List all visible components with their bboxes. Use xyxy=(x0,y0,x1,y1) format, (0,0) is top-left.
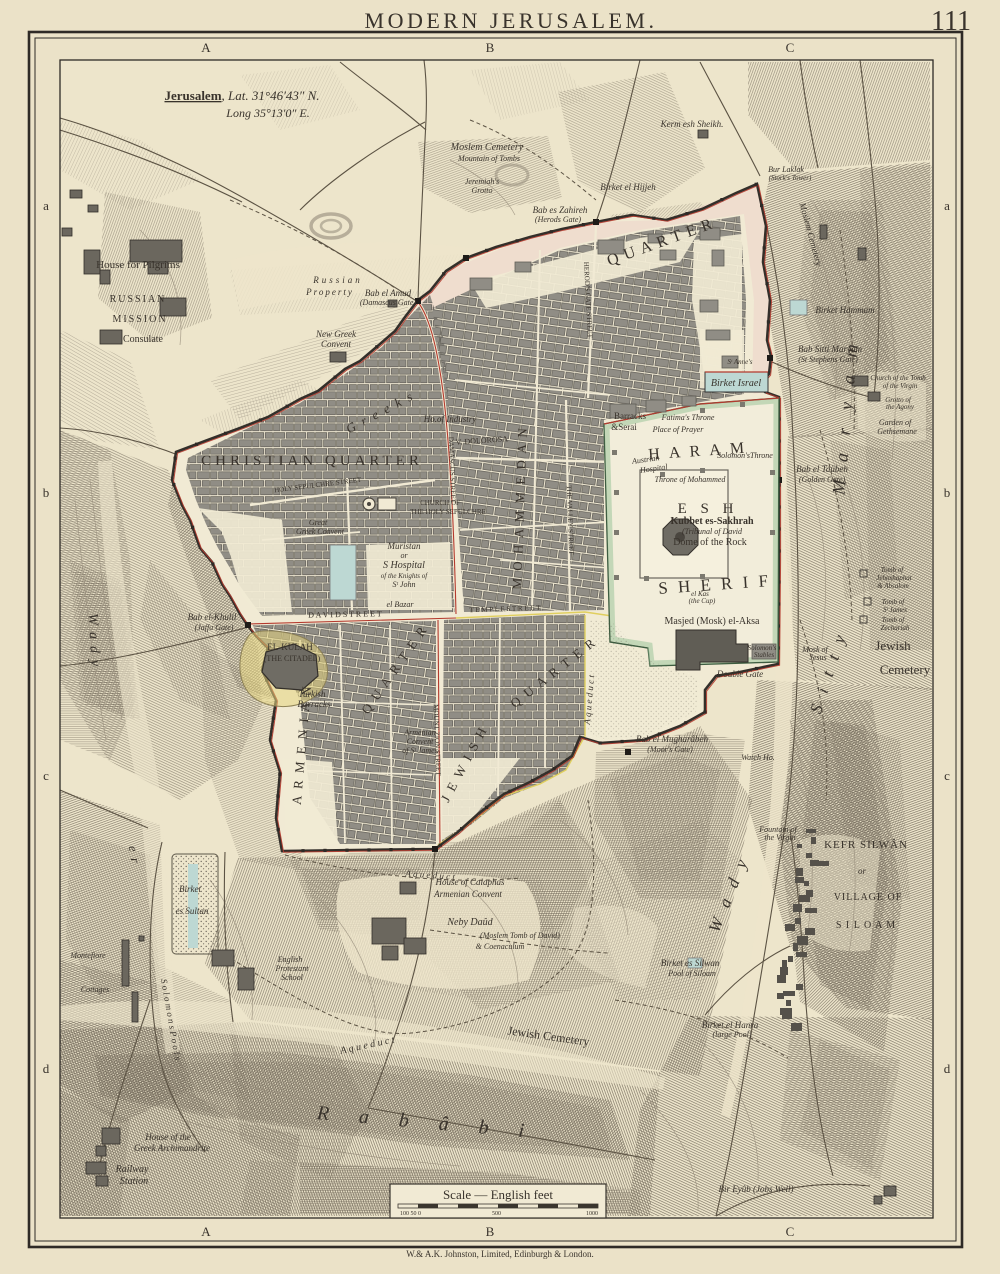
svg-text:Consulate: Consulate xyxy=(123,334,164,345)
svg-text:Protestant: Protestant xyxy=(274,964,309,973)
svg-text:Jerusalem, Lat. 31°46′43″ N.: Jerusalem, Lat. 31°46′43″ N. xyxy=(164,88,319,103)
svg-text:of the Virgin: of the Virgin xyxy=(883,382,918,390)
svg-text:d: d xyxy=(43,1061,50,1076)
svg-text:Masjed (Mosk) el-Aksa: Masjed (Mosk) el-Aksa xyxy=(665,616,761,627)
svg-text:el Bazar: el Bazar xyxy=(387,600,415,609)
svg-text:S Hospital: S Hospital xyxy=(383,560,425,571)
svg-text:Tomb of: Tomb of xyxy=(882,616,906,624)
svg-text:&Serai: &Serai xyxy=(611,422,637,432)
svg-text:Montefiore: Montefiore xyxy=(69,951,106,960)
svg-text:Sᵗ John: Sᵗ John xyxy=(393,580,416,589)
svg-text:(Moor's Gate): (Moor's Gate) xyxy=(647,745,693,754)
svg-text:Birket: Birket xyxy=(179,884,201,894)
svg-text:Birket Israel: Birket Israel xyxy=(711,378,761,389)
svg-text:or: or xyxy=(858,866,867,876)
svg-text:W a d y: W a d y xyxy=(85,613,103,667)
svg-text:Birket el Hanra: Birket el Hanra xyxy=(702,1020,759,1030)
svg-text:Property: Property xyxy=(305,287,354,297)
svg-text:Mountain of Tombs: Mountain of Tombs xyxy=(457,154,520,163)
svg-text:CHRISTIAN QUARTER: CHRISTIAN QUARTER xyxy=(201,453,423,469)
svg-text:D A V I D S T R E E T: D A V I D S T R E E T xyxy=(308,609,382,619)
svg-text:Fatima's Throne: Fatima's Throne xyxy=(661,413,715,422)
svg-text:& Absalom: & Absalom xyxy=(877,582,909,590)
svg-text:Double Gate: Double Gate xyxy=(716,669,763,679)
svg-text:Long 35°13′0″ E.: Long 35°13′0″ E. xyxy=(225,106,309,120)
svg-text:Tomb of: Tomb of xyxy=(882,598,906,606)
svg-text:Convent: Convent xyxy=(321,339,351,349)
svg-text:THE HOLY SEPULCHRE: THE HOLY SEPULCHRE xyxy=(410,508,486,516)
svg-text:Birket es Silwan: Birket es Silwan xyxy=(661,958,720,968)
svg-text:(Herods Gate): (Herods Gate) xyxy=(535,215,581,224)
svg-text:Sᵗ James: Sᵗ James xyxy=(883,606,907,614)
svg-text:c: c xyxy=(944,768,950,783)
svg-text:Bab el Amud: Bab el Amud xyxy=(365,288,412,298)
svg-text:Barracks: Barracks xyxy=(614,411,646,421)
svg-text:School: School xyxy=(281,973,304,982)
svg-text:Cemetery: Cemetery xyxy=(880,662,931,677)
svg-text:Armenian: Armenian xyxy=(403,728,436,737)
svg-text:New Greek: New Greek xyxy=(315,329,357,339)
svg-text:Gethsemane: Gethsemane xyxy=(877,427,917,436)
svg-text:English: English xyxy=(277,955,302,964)
svg-text:Convent: Convent xyxy=(407,737,434,746)
svg-text:A: A xyxy=(201,40,211,55)
svg-text:Jehoshaphat: Jehoshaphat xyxy=(876,574,912,582)
svg-text:B: B xyxy=(486,1224,495,1239)
svg-text:of the Knights of: of the Knights of xyxy=(381,572,429,580)
svg-text:House of the: House of the xyxy=(144,1132,191,1142)
svg-text:A: A xyxy=(201,1224,211,1239)
svg-text:Stables: Stables xyxy=(754,651,774,659)
svg-text:House for Pilgrims: House for Pilgrims xyxy=(96,259,180,271)
svg-text:es Sultan: es Sultan xyxy=(176,906,209,916)
svg-text:B: B xyxy=(486,40,495,55)
svg-text:Throne of Mohammed: Throne of Mohammed xyxy=(655,475,727,484)
svg-text:E S H: E S H xyxy=(678,501,739,517)
svg-text:Russian: Russian xyxy=(312,275,363,285)
svg-text:Bab es Zahireh: Bab es Zahireh xyxy=(533,205,588,215)
svg-text:Pool of Siloam: Pool of Siloam xyxy=(667,969,716,978)
svg-text:1000: 1000 xyxy=(586,1211,598,1217)
svg-text:Greek Archimandrite: Greek Archimandrite xyxy=(134,1143,210,1153)
svg-text:Bir Eyûb (Jobs Well): Bir Eyûb (Jobs Well) xyxy=(719,1184,794,1194)
svg-text:or: or xyxy=(400,551,408,560)
svg-text:the Agony: the Agony xyxy=(886,403,915,411)
svg-text:MISSION: MISSION xyxy=(112,314,167,325)
svg-text:d: d xyxy=(944,1061,951,1076)
svg-text:Sᵗ Anne's: Sᵗ Anne's xyxy=(728,358,753,366)
svg-text:VILLAGE OF: VILLAGE OF xyxy=(834,892,903,903)
svg-text:Cottages: Cottages xyxy=(81,985,109,994)
svg-text:& Coenaculum: & Coenaculum xyxy=(476,942,525,951)
svg-text:C: C xyxy=(786,40,795,55)
svg-text:Bab el-Khulil: Bab el-Khulil xyxy=(188,612,237,622)
svg-text:Kerm esh Sheikh.: Kerm esh Sheikh. xyxy=(660,119,724,129)
svg-text:Moslem Cemetery: Moslem Cemetery xyxy=(450,142,524,153)
svg-text:Great: Great xyxy=(309,518,328,527)
svg-text:Muristan: Muristan xyxy=(386,541,421,551)
svg-text:Greek Convent: Greek Convent xyxy=(296,527,345,536)
svg-text:Jewish: Jewish xyxy=(875,638,911,653)
svg-text:Jeremiah's: Jeremiah's xyxy=(465,177,499,186)
svg-text:Bur Laklak: Bur Laklak xyxy=(768,165,804,174)
svg-text:Birket Hammam: Birket Hammam xyxy=(815,305,875,315)
svg-text:a: a xyxy=(43,198,49,213)
svg-text:100 50 0: 100 50 0 xyxy=(400,1211,421,1217)
svg-text:Neby Daûd: Neby Daûd xyxy=(446,917,493,928)
svg-text:(Moslem Tomb of David): (Moslem Tomb of David) xyxy=(480,931,560,940)
svg-text:(THE CITADEL): (THE CITADEL) xyxy=(264,654,321,663)
svg-text:Watch Hο.: Watch Hο. xyxy=(741,753,774,762)
svg-text:(the Cup): (the Cup) xyxy=(689,597,716,605)
svg-text:Station: Station xyxy=(120,1176,148,1187)
svg-text:RUSSIAN: RUSSIAN xyxy=(110,294,167,305)
svg-text:KEFR SILWÂN: KEFR SILWÂN xyxy=(824,839,908,851)
svg-text:Ho.of Industry: Ho.of Industry xyxy=(423,414,477,424)
svg-text:the Virgin: the Virgin xyxy=(764,833,795,842)
svg-text:(Stork's Tower): (Stork's Tower) xyxy=(769,174,812,182)
svg-text:of Sᵗ James: of Sᵗ James xyxy=(402,746,438,755)
svg-text:Bab el Mugharâbeh: Bab el Mugharâbeh xyxy=(636,734,708,744)
svg-text:Church of the Tomb: Church of the Tomb xyxy=(870,374,926,382)
svg-text:Dome of the Rock: Dome of the Rock xyxy=(673,537,747,548)
svg-text:b: b xyxy=(43,485,50,500)
svg-text:Place of Prayer: Place of Prayer xyxy=(652,425,705,434)
svg-text:Scale — English feet: Scale — English feet xyxy=(443,1187,553,1202)
svg-text:Kubbet es-Sakhrah: Kubbet es-Sakhrah xyxy=(670,516,754,527)
svg-text:500: 500 xyxy=(492,1211,501,1217)
svg-text:111: 111 xyxy=(931,6,971,37)
svg-text:Birket el Hijjeh: Birket el Hijjeh xyxy=(600,182,656,192)
svg-text:(Damascus Gate): (Damascus Gate) xyxy=(360,298,417,307)
svg-text:c: c xyxy=(43,768,49,783)
svg-text:Railway: Railway xyxy=(115,1164,149,1175)
svg-text:MODERN JERUSALEM.: MODERN JERUSALEM. xyxy=(365,8,658,33)
svg-text:Grotto: Grotto xyxy=(471,186,492,195)
svg-text:(Tribunal of David: (Tribunal of David xyxy=(682,527,743,536)
svg-text:C: C xyxy=(786,1224,795,1239)
svg-text:Armenian Convent: Armenian Convent xyxy=(433,889,502,899)
svg-text:e r: e r xyxy=(126,844,144,865)
svg-text:b: b xyxy=(944,485,951,500)
svg-text:S I L O A M: S I L O A M xyxy=(836,920,896,931)
svg-text:W.& A.K. Johnston, Limited, Ed: W.& A.K. Johnston, Limited, Edinburgh & … xyxy=(406,1249,594,1259)
svg-text:Zechariah: Zechariah xyxy=(881,624,910,632)
svg-text:(large Pool): (large Pool) xyxy=(712,1030,751,1039)
svg-text:Tomb of: Tomb of xyxy=(881,566,905,574)
svg-text:Jesus: Jesus xyxy=(809,653,826,662)
svg-text:EL-KULAH: EL-KULAH xyxy=(267,642,313,652)
svg-text:a: a xyxy=(944,198,950,213)
svg-text:Garden of: Garden of xyxy=(879,418,913,427)
svg-text:(Jaffa Gate): (Jaffa Gate) xyxy=(195,623,234,632)
